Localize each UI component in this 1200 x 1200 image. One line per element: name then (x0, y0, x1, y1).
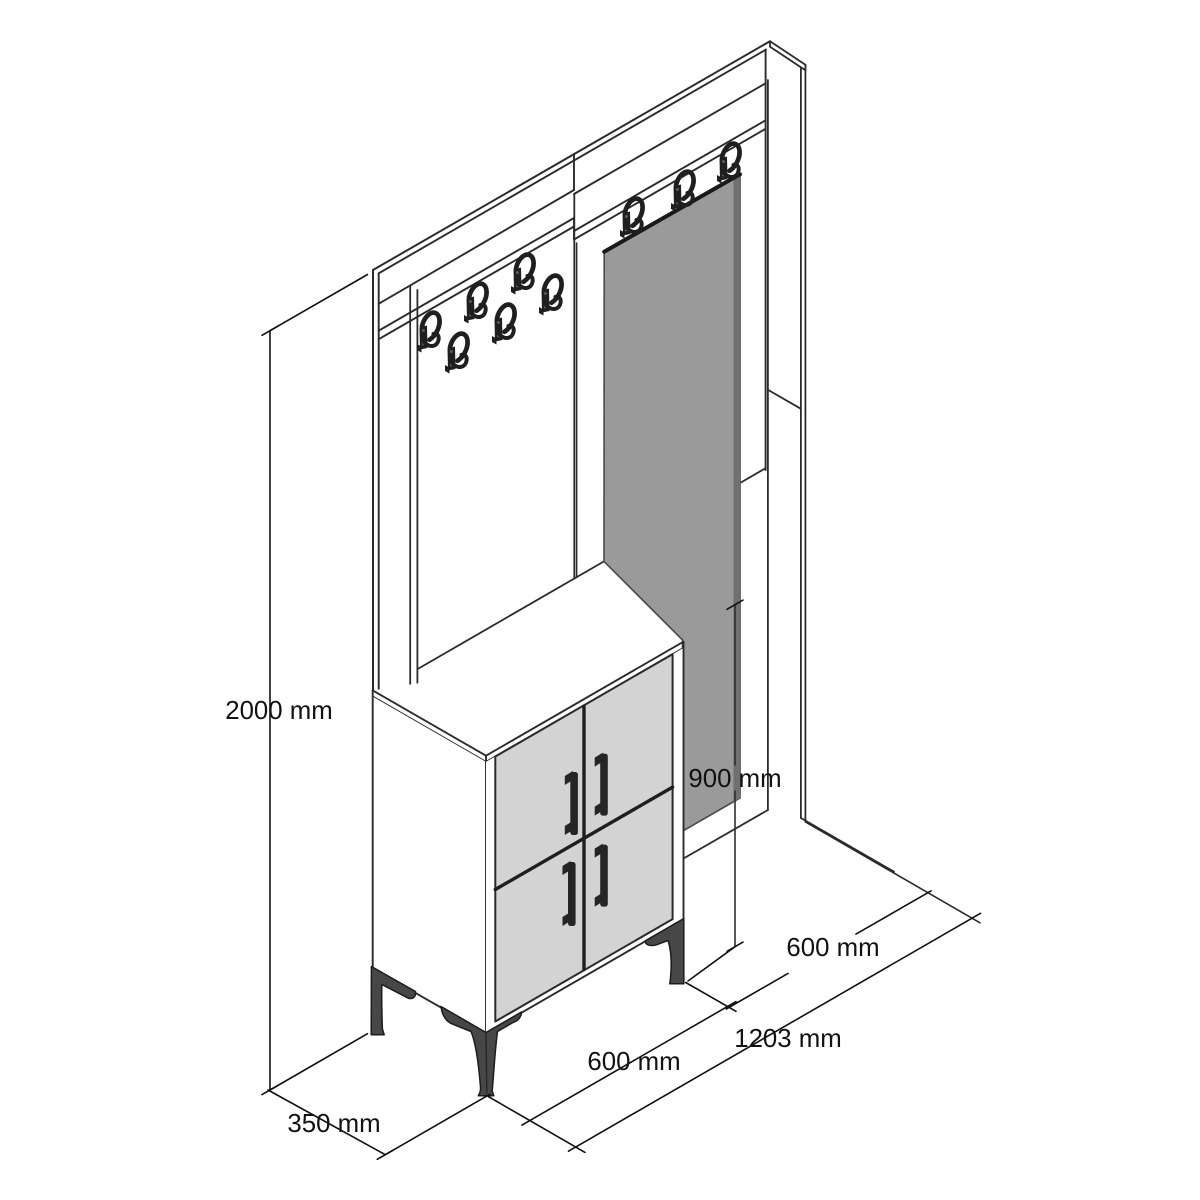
svg-text:2000 mm: 2000 mm (225, 697, 333, 725)
svg-text:600 mm: 600 mm (786, 934, 879, 962)
svg-text:900 mm: 900 mm (688, 765, 781, 793)
svg-text:600 mm: 600 mm (587, 1048, 680, 1076)
svg-text:1203 mm: 1203 mm (734, 1025, 842, 1053)
svg-text:350 mm: 350 mm (287, 1110, 380, 1138)
